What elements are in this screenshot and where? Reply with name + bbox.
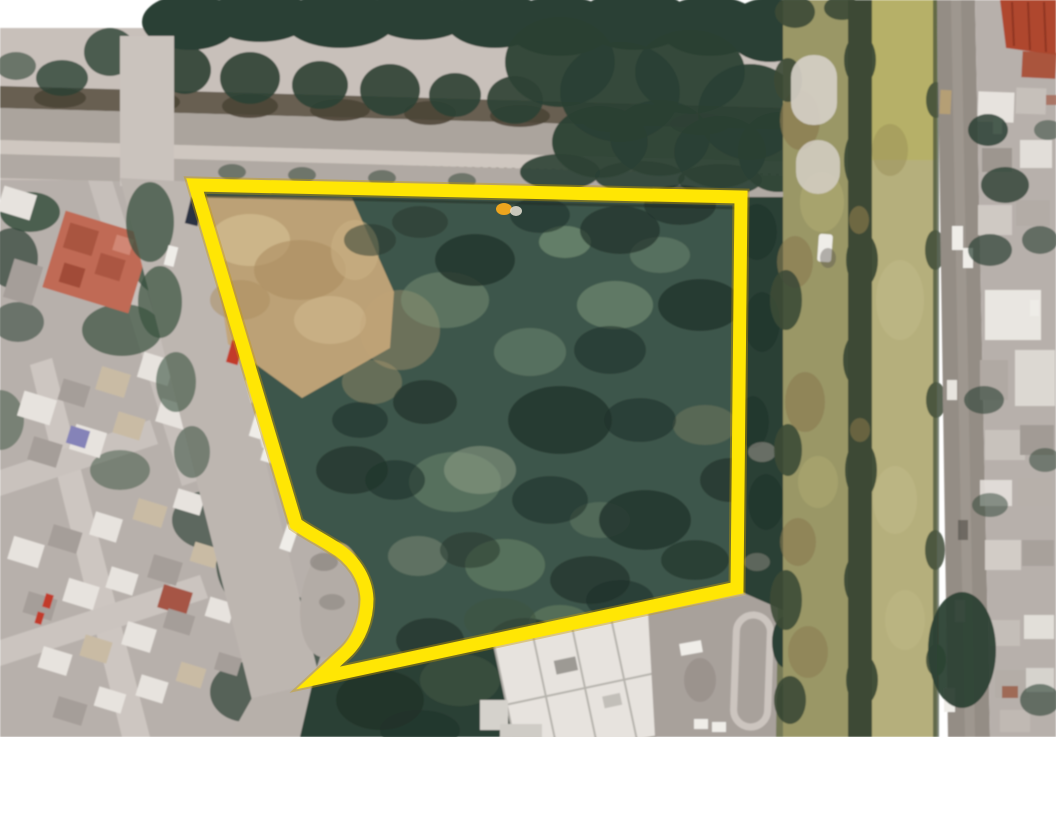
canal-crossing-pad bbox=[791, 55, 837, 125]
satellite-map-image: . bbox=[0, 0, 1056, 816]
tree-lined-boulevard bbox=[0, 0, 818, 200]
aerial-photo: . bbox=[0, 0, 1056, 816]
drainage-canal bbox=[770, 0, 946, 737]
canal-crossing-pad-2 bbox=[796, 140, 840, 194]
marker-orange-dot bbox=[496, 203, 512, 215]
marker-white-dot bbox=[510, 206, 522, 216]
side-street bbox=[120, 36, 174, 186]
bottom-margin bbox=[0, 737, 1056, 816]
